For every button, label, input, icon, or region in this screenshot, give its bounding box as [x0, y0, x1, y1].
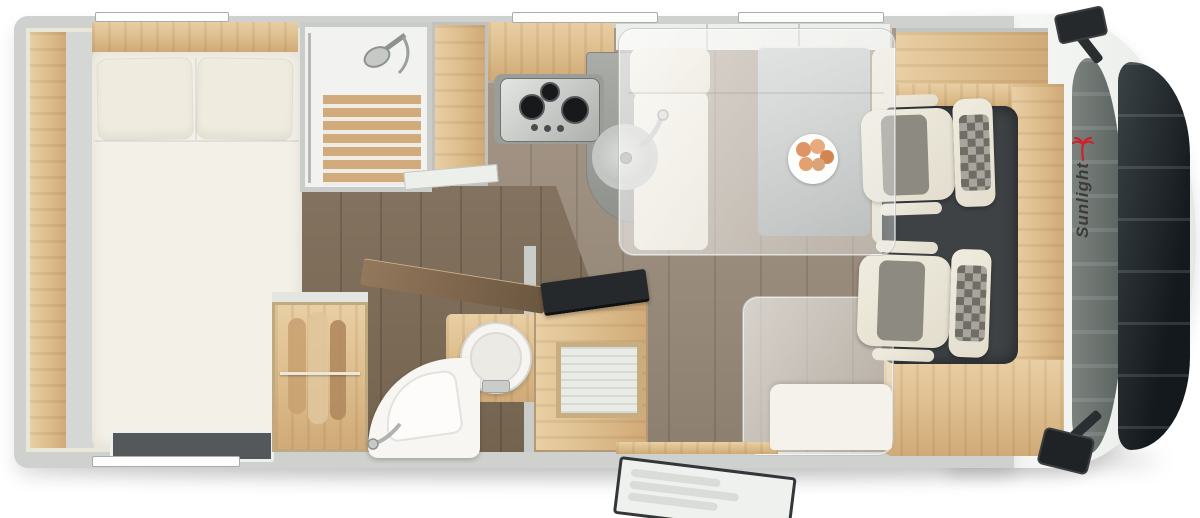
side-mirror-top [1050, 10, 1106, 84]
side-mirror-bottom [1040, 410, 1098, 472]
duvet-seam [95, 140, 299, 142]
hob-knob-1 [531, 124, 538, 131]
hob-knob-2 [544, 125, 551, 132]
bread-roll-4 [799, 157, 813, 171]
drop-down-bed-seam [628, 92, 884, 94]
toilet-hinge [482, 380, 510, 393]
pillow-left [96, 57, 193, 141]
passenger-seat-center [877, 260, 926, 342]
bread-roll-1 [796, 142, 811, 157]
hob-burner-top [540, 82, 560, 102]
clothes-wardrobe-top [272, 292, 368, 302]
top-window-slot-3 [738, 12, 884, 23]
brand-logo-text: Sunlight [1073, 162, 1093, 238]
shower-head-icon [339, 29, 425, 91]
mirror-head-top [1053, 5, 1108, 45]
hanging-clothes-1 [288, 318, 306, 414]
drop-down-bed-overlay [618, 28, 896, 256]
entry-threshold [616, 442, 778, 454]
bread-roll-5 [812, 158, 825, 171]
passenger-seat [856, 237, 1008, 366]
pillow-right [196, 57, 293, 141]
passenger-armrest-bottom [872, 348, 934, 362]
overcab-shelf [896, 28, 1048, 86]
rear-bedroom [26, 28, 302, 452]
bottom-window-slot [92, 456, 240, 467]
top-window-slot-2 [512, 12, 658, 23]
hob-burner-right [561, 96, 589, 124]
shower-glass-door [308, 33, 311, 183]
bed-shelf-top [92, 22, 298, 52]
brand-logo: Sunlight [1068, 136, 1098, 332]
windshield [1118, 62, 1190, 450]
duvet-center-fold [195, 58, 197, 140]
bed-shelf-left [30, 32, 66, 448]
shower-cabin [300, 22, 432, 192]
tall-wardrobe [432, 22, 488, 186]
mirror-head-bottom [1036, 426, 1096, 475]
hanging-clothes-2 [308, 312, 328, 424]
palm-tree-icon [1071, 136, 1095, 162]
hob-knob-3 [557, 125, 564, 132]
dinette-side-seat [770, 384, 892, 450]
floorplan-render: Sunlight [0, 0, 1200, 518]
tambour-cabinet [556, 342, 642, 418]
driver-head-cushion [959, 114, 992, 191]
cab-wood-bottom [884, 360, 1064, 456]
clothes-rail [280, 372, 360, 375]
basin-faucet-icon [366, 414, 410, 450]
toilet-seat [470, 332, 522, 384]
top-window-slot-1 [95, 12, 229, 22]
bed-side-cabinet [66, 32, 94, 448]
hanging-clothes-3 [330, 320, 346, 420]
passenger-head-cushion [955, 265, 988, 342]
